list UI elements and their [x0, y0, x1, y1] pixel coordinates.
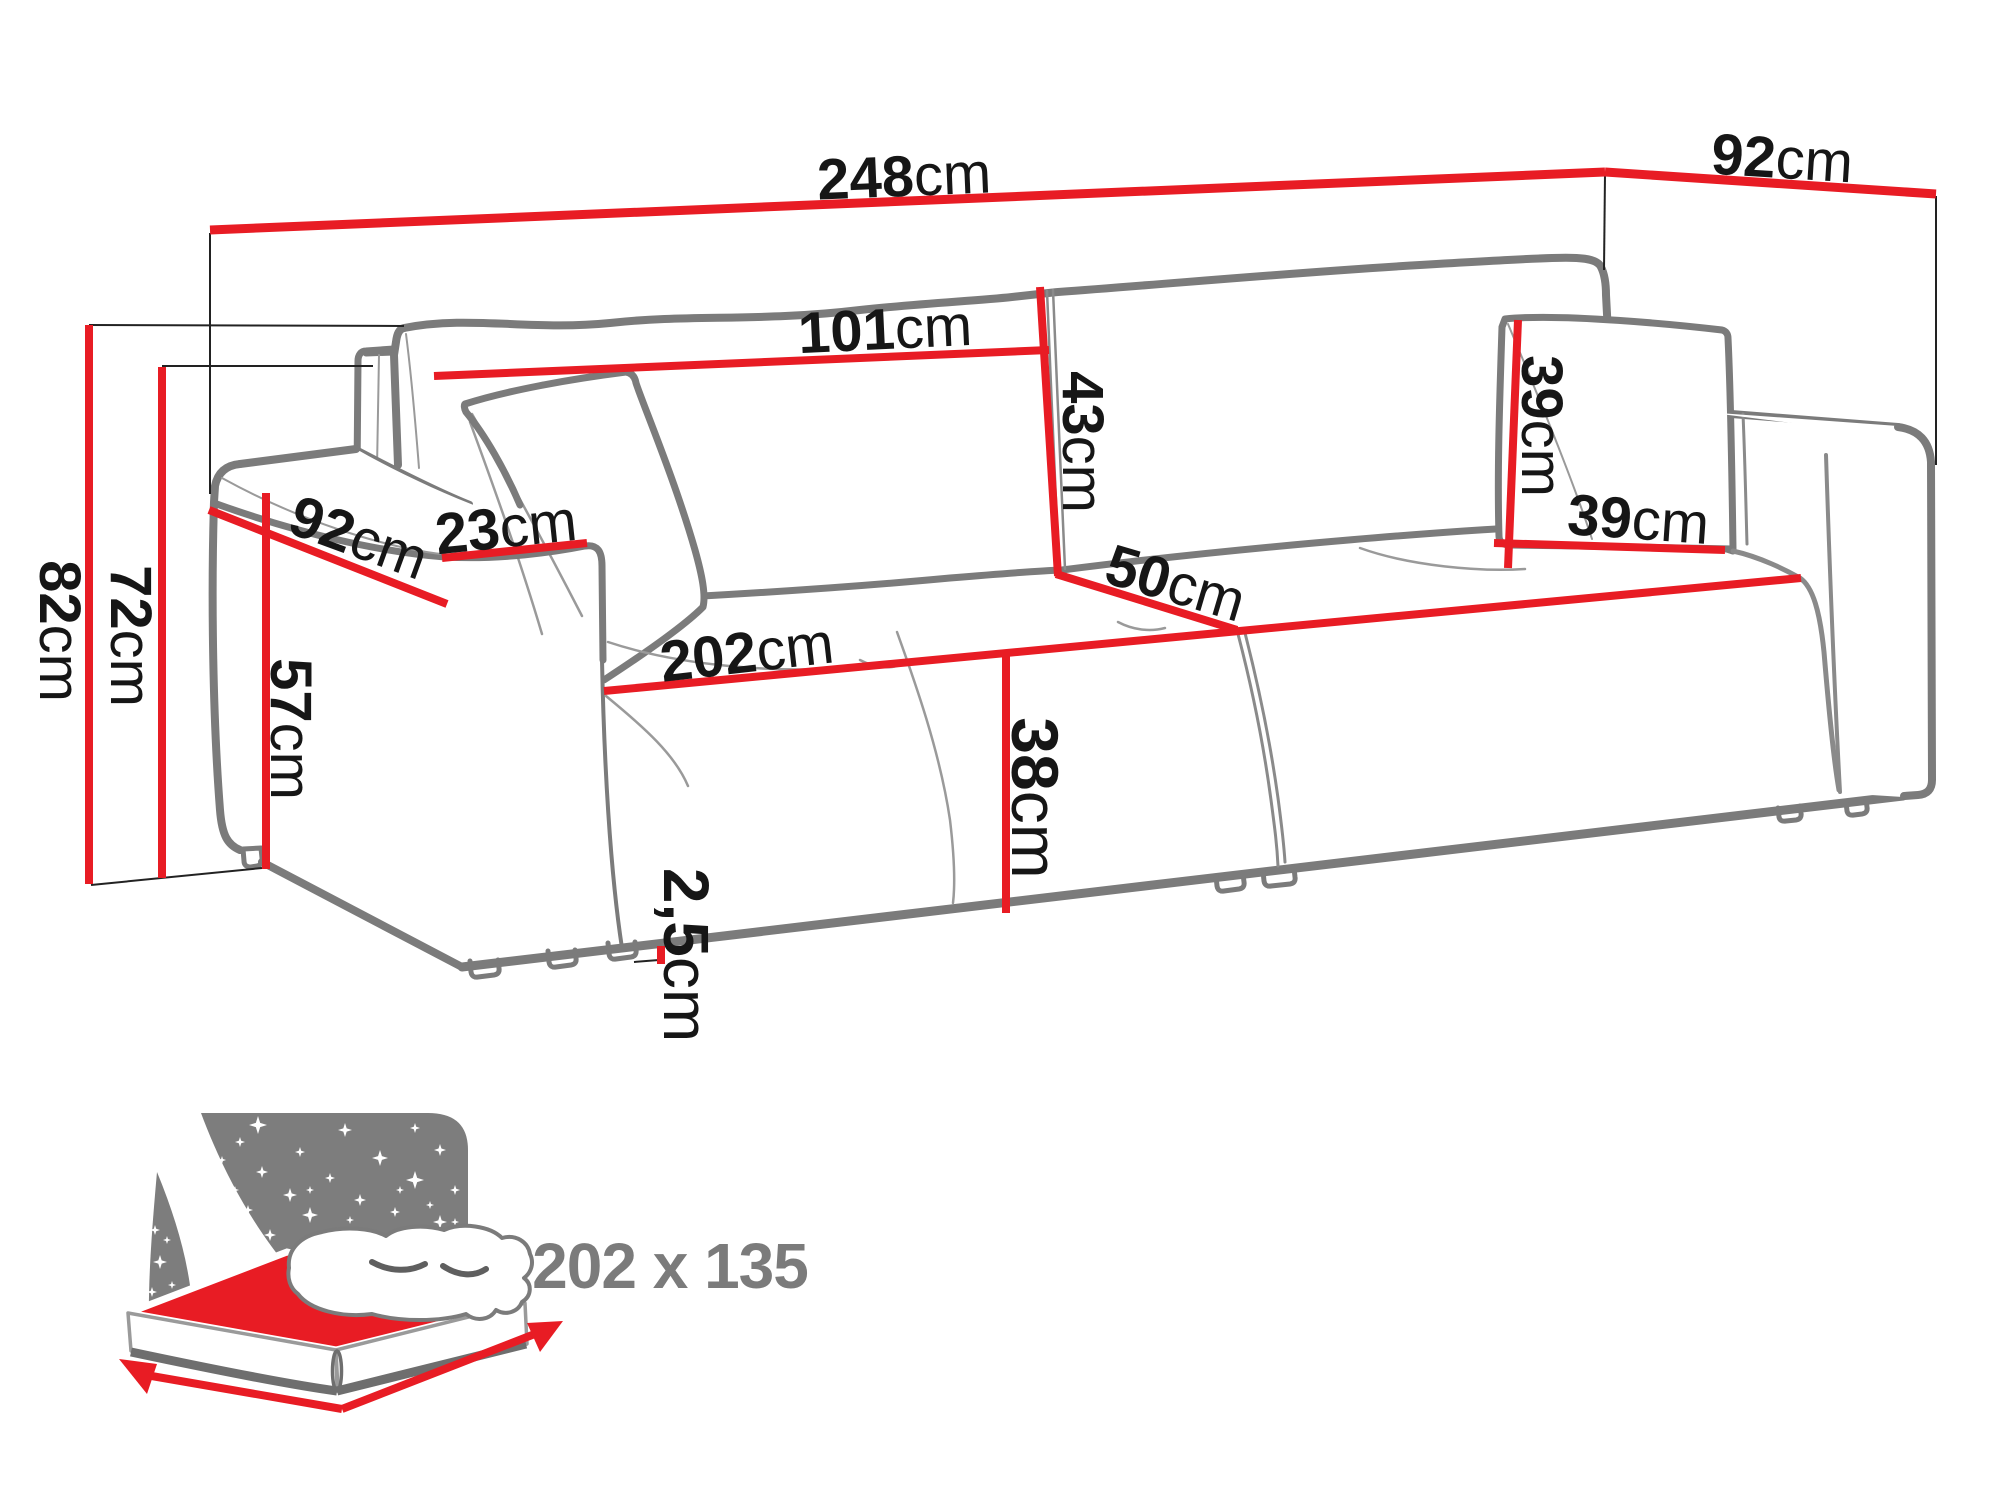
svg-text:101cm: 101cm: [797, 293, 974, 366]
svg-text:92cm: 92cm: [1709, 122, 1855, 196]
svg-text:248cm: 248cm: [816, 140, 993, 212]
svg-text:38cm: 38cm: [998, 717, 1072, 878]
svg-text:202 x 135: 202 x 135: [532, 1230, 808, 1302]
svg-text:82cm: 82cm: [27, 560, 92, 702]
svg-text:39cm: 39cm: [1509, 355, 1574, 497]
svg-text:57cm: 57cm: [258, 658, 323, 800]
svg-text:2,5cm: 2,5cm: [650, 868, 722, 1042]
svg-text:43cm: 43cm: [1050, 371, 1115, 513]
svg-text:72cm: 72cm: [98, 565, 163, 707]
svg-text:39cm: 39cm: [1565, 482, 1711, 557]
